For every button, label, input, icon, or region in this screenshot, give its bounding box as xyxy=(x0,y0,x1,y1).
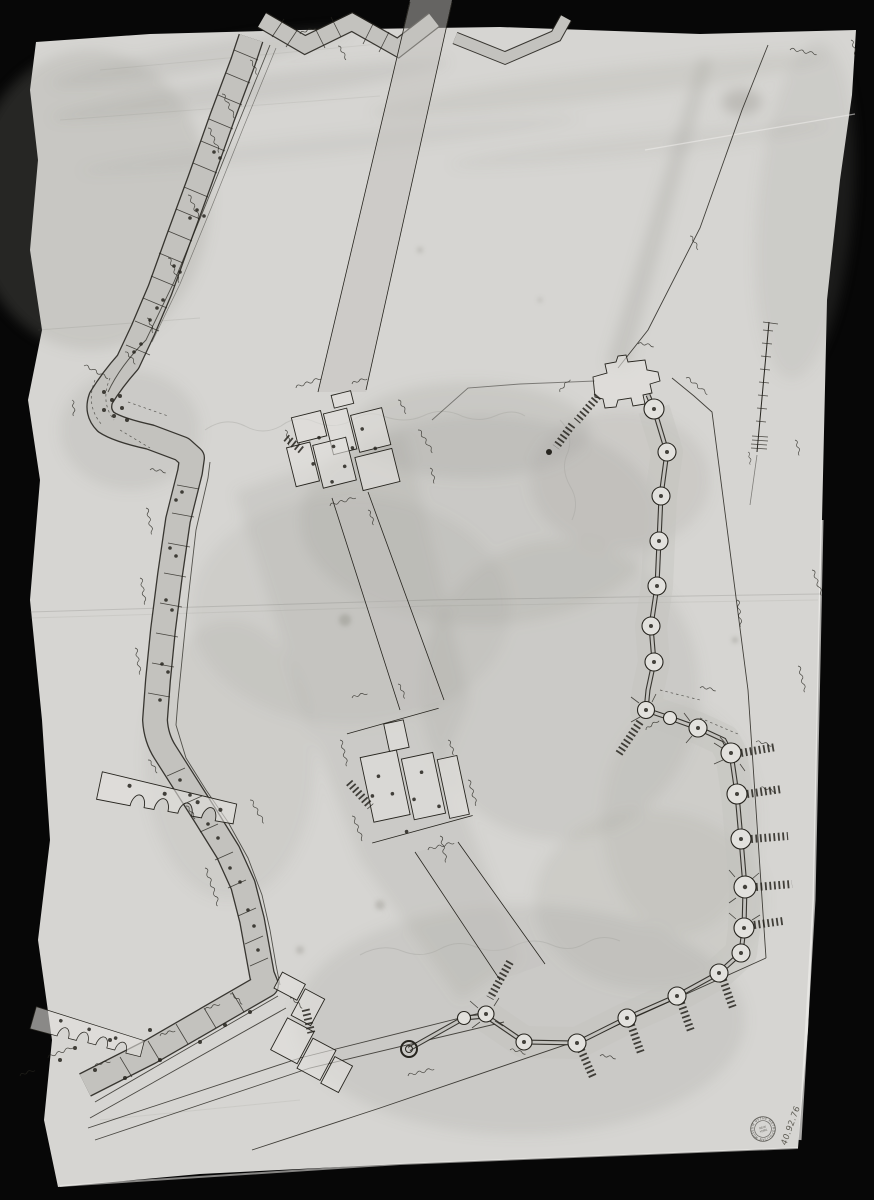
photographed-drawing: THE METROPOLITAN MUSEUM OF ART · NEW YOR… xyxy=(0,0,874,1200)
fortification-plan: THE METROPOLITAN MUSEUM OF ART · NEW YOR… xyxy=(0,0,874,1200)
